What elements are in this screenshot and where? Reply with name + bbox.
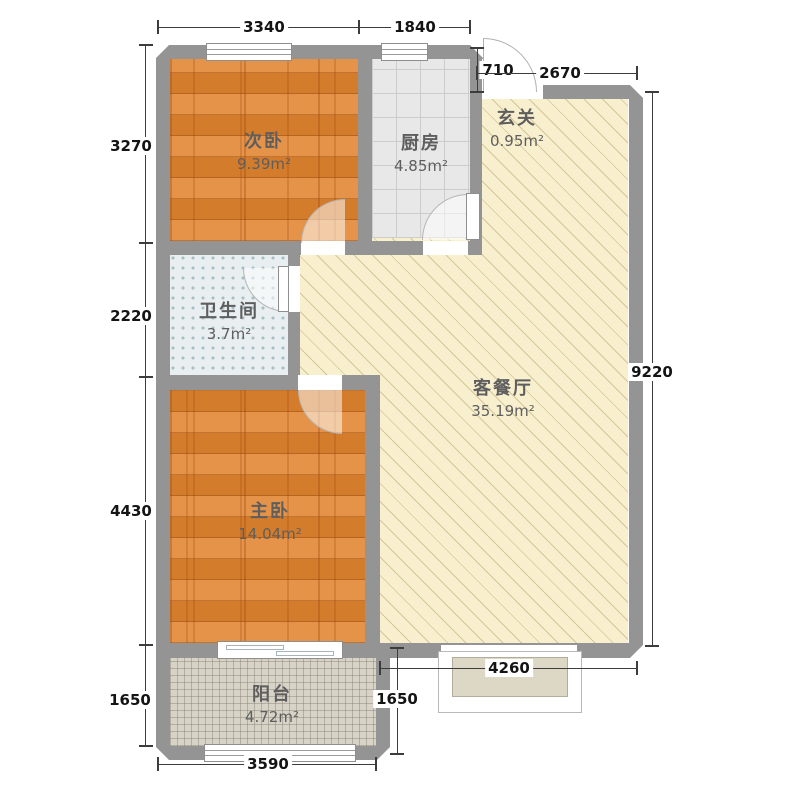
master-door-opening bbox=[298, 375, 342, 390]
dim-top-left: 3340 bbox=[240, 18, 288, 36]
room-label-entry: 玄关 0.95m² bbox=[490, 104, 544, 150]
dim-tick bbox=[375, 757, 377, 771]
dim-tick bbox=[358, 20, 360, 34]
room-label-secondary-bedroom: 次卧 9.39m² bbox=[237, 127, 291, 173]
room-name: 主卧 bbox=[238, 497, 302, 523]
dim-tick bbox=[636, 661, 638, 675]
dim-tick bbox=[645, 91, 659, 93]
bathroom-door-leaf bbox=[278, 266, 289, 312]
window-secondary-bedroom bbox=[206, 43, 292, 61]
dim-left-3: 4430 bbox=[107, 502, 155, 520]
room-label-master-bedroom: 主卧 14.04m² bbox=[238, 497, 302, 543]
sliding-door-panel bbox=[226, 645, 284, 650]
window-kitchen bbox=[381, 43, 428, 61]
dim-tick bbox=[470, 91, 484, 93]
kitchen-door-leaf bbox=[466, 193, 480, 240]
dim-tick bbox=[139, 44, 153, 46]
dim-tick bbox=[476, 66, 478, 80]
room-label-bathroom: 卫生间 3.7m² bbox=[199, 297, 259, 343]
room-name: 客餐厅 bbox=[471, 374, 535, 400]
dim-tick bbox=[636, 66, 638, 80]
room-area: 3.7m² bbox=[199, 325, 259, 343]
dim-tick bbox=[139, 644, 153, 646]
room-name: 阳台 bbox=[245, 680, 299, 706]
floor-plan: 次卧 9.39m² 厨房 4.85m² 玄关 0.95m² 卫生间 3.7m² … bbox=[0, 0, 800, 800]
dim-tick bbox=[157, 757, 159, 771]
dim-tick bbox=[379, 661, 381, 675]
dim-bottom-width: 3590 bbox=[244, 755, 292, 773]
wall-master-right bbox=[365, 375, 380, 658]
dim-tick bbox=[390, 647, 404, 649]
dim-balcony-right: 1650 bbox=[373, 690, 421, 708]
room-label-living-dining: 客餐厅 35.19m² bbox=[471, 374, 535, 420]
bathroom-door-opening bbox=[288, 266, 300, 312]
dim-tick bbox=[139, 376, 153, 378]
bedroom2-door-opening bbox=[301, 241, 345, 255]
room-area: 14.04m² bbox=[238, 525, 302, 543]
room-name: 厨房 bbox=[394, 129, 448, 155]
room-name: 玄关 bbox=[490, 104, 544, 130]
room-label-kitchen: 厨房 4.85m² bbox=[394, 129, 448, 175]
dim-left-1: 3270 bbox=[107, 137, 155, 155]
dim-tick bbox=[470, 47, 484, 49]
dim-tick bbox=[157, 20, 159, 34]
dim-right-height: 9220 bbox=[628, 363, 676, 381]
sliding-door-panel bbox=[276, 651, 334, 656]
room-name: 次卧 bbox=[237, 127, 291, 153]
room-label-balcony: 阳台 4.72m² bbox=[245, 680, 299, 726]
sliding-door-master-balcony bbox=[217, 641, 343, 659]
dim-entry-depth: 710 bbox=[479, 61, 516, 79]
dim-entry-width: 2670 bbox=[536, 64, 584, 82]
dim-tick bbox=[139, 242, 153, 244]
room-name: 卫生间 bbox=[199, 297, 259, 323]
dim-left-4: 1650 bbox=[106, 691, 154, 709]
dim-top-right: 1840 bbox=[391, 18, 439, 36]
room-area: 4.72m² bbox=[245, 708, 299, 726]
wall-living-top bbox=[543, 85, 643, 99]
dim-tick bbox=[645, 645, 659, 647]
wall-bed2-kitchen bbox=[358, 59, 372, 241]
room-area: 0.95m² bbox=[490, 132, 544, 150]
dim-left-2: 2220 bbox=[107, 307, 155, 325]
dim-tick bbox=[390, 753, 404, 755]
dim-tick bbox=[139, 745, 153, 747]
wall-bathroom-bottom bbox=[156, 375, 380, 390]
room-area: 4.85m² bbox=[394, 157, 448, 175]
room-area: 35.19m² bbox=[471, 402, 535, 420]
room-area: 9.39m² bbox=[237, 155, 291, 173]
kitchen-door-opening bbox=[423, 241, 468, 255]
dim-tick bbox=[469, 20, 471, 34]
dim-bay-width: 4260 bbox=[485, 659, 533, 677]
